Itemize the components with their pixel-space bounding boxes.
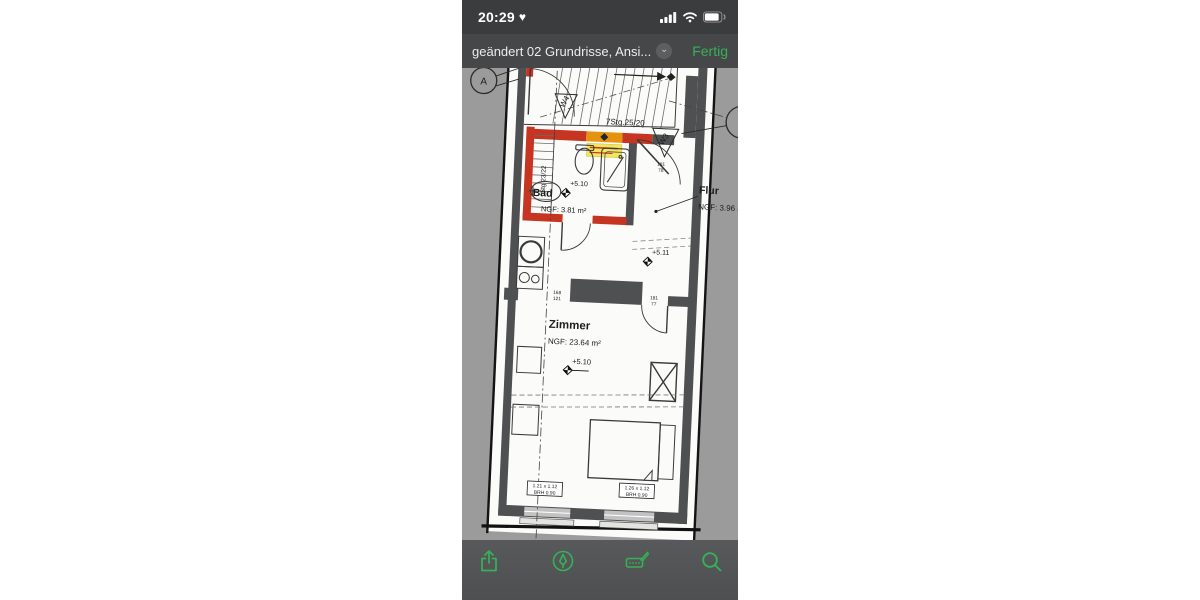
status-time: 20:29 ♥ bbox=[478, 9, 526, 25]
done-button[interactable]: Fertig bbox=[692, 43, 728, 59]
floor-plan-drawing: A W4 W3 bbox=[462, 68, 738, 540]
svg-text:121: 121 bbox=[553, 296, 562, 302]
share-button[interactable] bbox=[476, 548, 502, 574]
share-icon bbox=[478, 549, 500, 573]
phone-screen: 20:29 ♥ bbox=[462, 0, 738, 600]
svg-text:181: 181 bbox=[657, 161, 666, 167]
clock-text: 20:29 bbox=[478, 9, 515, 25]
level-bad: +5.10 bbox=[570, 181, 588, 189]
heart-icon: ♥ bbox=[519, 10, 526, 24]
document-title[interactable]: geändert 02 Grundrisse, Ansi... bbox=[472, 44, 651, 59]
svg-text:A: A bbox=[480, 76, 487, 87]
svg-text:181: 181 bbox=[650, 295, 659, 301]
svg-text:77: 77 bbox=[651, 301, 657, 307]
cellular-icon bbox=[660, 11, 677, 23]
status-bar: 20:29 ♥ bbox=[462, 0, 738, 34]
search-icon bbox=[700, 550, 723, 573]
markup-icon bbox=[551, 549, 575, 573]
svg-text:78: 78 bbox=[658, 168, 664, 174]
room-label-flur: Flur bbox=[699, 184, 719, 197]
status-icons bbox=[660, 11, 726, 23]
level-flur: +5.11 bbox=[652, 249, 670, 257]
battery-icon bbox=[703, 11, 726, 23]
title-bar: geändert 02 Grundrisse, Ansi... ⌄ Fertig bbox=[462, 34, 738, 68]
svg-text:BRH 0.90: BRH 0.90 bbox=[626, 492, 648, 499]
search-button[interactable] bbox=[698, 548, 724, 574]
markup-button[interactable] bbox=[550, 548, 576, 574]
screenshot-canvas: 20:29 ♥ bbox=[0, 0, 1200, 600]
sign-icon bbox=[624, 549, 650, 573]
stair-label-upper: 7Stg.25/20 bbox=[606, 117, 646, 128]
bottom-toolbar bbox=[462, 540, 738, 600]
svg-text:BRH 0.90: BRH 0.90 bbox=[534, 490, 556, 497]
sign-button[interactable] bbox=[624, 548, 650, 574]
room-label-zimmer: Zimmer bbox=[548, 319, 591, 333]
level-zimmer: +5.10 bbox=[572, 357, 591, 367]
room-label-bad: Bad bbox=[532, 187, 552, 200]
wifi-icon bbox=[682, 11, 698, 23]
chevron-down-icon[interactable]: ⌄ bbox=[656, 43, 672, 59]
svg-text:168: 168 bbox=[553, 290, 562, 296]
floor-plan-viewer[interactable]: A W4 W3 bbox=[462, 68, 738, 540]
